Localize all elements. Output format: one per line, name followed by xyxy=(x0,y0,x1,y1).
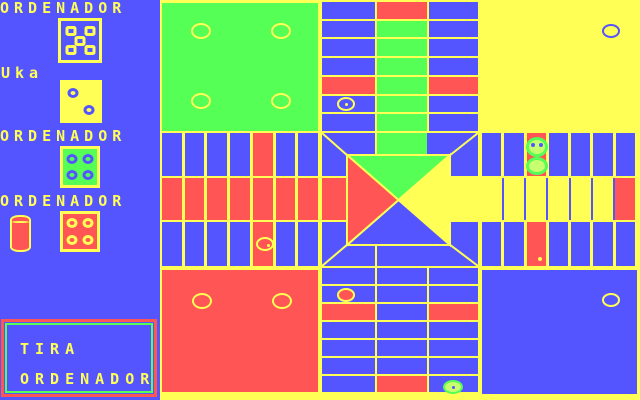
board-cell-green xyxy=(377,114,427,131)
message-box-inner: TIRA ORDENADOR xyxy=(5,323,153,393)
board-cell-yellow xyxy=(482,178,502,220)
board-cell-blue xyxy=(571,222,590,266)
board-cell-red xyxy=(322,77,375,94)
green-home-slot-circle xyxy=(271,23,291,39)
board-cell-blue xyxy=(429,286,478,302)
player-label-uka: Uka xyxy=(1,66,43,81)
piece-mark xyxy=(267,244,270,247)
board-cell-red xyxy=(253,178,273,220)
board-cell-blue xyxy=(377,304,427,320)
blue-home xyxy=(482,270,637,394)
board xyxy=(160,0,640,400)
board-cell-red xyxy=(230,178,250,220)
parchis-game-screen: ORDENADOR Uka ORDENADOR ORDENADOR TIRA O… xyxy=(0,0,640,400)
board-cell-red xyxy=(527,222,546,266)
die-pip xyxy=(65,26,76,36)
die-pip xyxy=(67,235,78,245)
die-pip xyxy=(67,170,78,180)
piece-green-track-bottom[interactable] xyxy=(443,380,463,394)
board-cell-red xyxy=(185,178,205,220)
board-cell-blue xyxy=(429,358,478,374)
die-pip xyxy=(82,218,93,228)
board-cell-blue xyxy=(162,222,182,266)
center-corner-patch xyxy=(426,133,478,176)
arm-left-bottom-row xyxy=(162,222,318,266)
green-home-slot-circle xyxy=(191,23,211,39)
message-box[interactable]: TIRA ORDENADOR xyxy=(1,319,157,397)
arm-right-bottom-row xyxy=(482,222,635,266)
die-pip xyxy=(82,154,93,164)
yellow-home-slot-circle xyxy=(602,24,620,38)
board-cell-blue xyxy=(322,268,375,284)
die-pip xyxy=(84,105,95,115)
die-pip xyxy=(67,88,78,98)
green-home-slot-circle xyxy=(191,93,211,109)
board-cell-blue xyxy=(429,114,478,131)
board-cell-blue xyxy=(482,222,501,266)
board-cell-red xyxy=(162,178,182,220)
board-cell-blue xyxy=(616,133,635,176)
board-cell-blue xyxy=(207,133,227,176)
board-cell-blue xyxy=(429,268,478,284)
die-Uka[interactable] xyxy=(60,80,102,123)
piece-mark xyxy=(345,103,348,106)
board-cell-red xyxy=(615,178,635,220)
board-cell-blue xyxy=(482,133,501,176)
board-cell-blue xyxy=(322,39,375,56)
arm-left-top-row xyxy=(162,133,318,176)
board-cell-blue xyxy=(504,222,523,266)
board-cell-blue xyxy=(230,133,250,176)
board-cell-red xyxy=(377,2,427,19)
die-ordenador-2[interactable] xyxy=(60,146,100,188)
board-cell-blue xyxy=(429,39,478,56)
board-cell-yellow xyxy=(593,178,613,220)
die-pip xyxy=(65,45,76,55)
arm-top-right-col xyxy=(429,2,478,131)
board-cell-blue xyxy=(322,358,375,374)
board-cell-blue xyxy=(276,222,296,266)
board-cell-blue xyxy=(549,133,568,176)
board-cell-blue xyxy=(429,322,478,338)
board-cell-red xyxy=(429,77,478,94)
entry-blue xyxy=(377,246,427,266)
piece-red-track[interactable] xyxy=(337,288,355,302)
board-cell-blue xyxy=(322,114,375,131)
board-cell-red xyxy=(253,133,273,176)
board-cell-blue xyxy=(429,58,478,75)
die-pip xyxy=(82,170,93,180)
piece-mark xyxy=(531,143,535,147)
center-corner-patch xyxy=(426,222,478,266)
board-cell-red xyxy=(322,304,375,320)
player-label-ordenador-3: ORDENADOR xyxy=(0,194,126,209)
center-corner-patch xyxy=(322,222,375,266)
board-cell-green xyxy=(377,96,427,113)
board-cell-blue xyxy=(322,376,375,392)
board-cell-blue xyxy=(593,222,612,266)
board-cell-blue xyxy=(276,133,296,176)
board-cell-blue xyxy=(377,322,427,338)
red-home xyxy=(162,270,318,392)
arm-top-mid-col xyxy=(377,2,427,131)
piece-green-pair-bottom[interactable] xyxy=(526,157,548,175)
board-cell-blue xyxy=(429,340,478,356)
player-label-ordenador-2: ORDENADOR xyxy=(0,129,126,144)
board-cell-blue xyxy=(429,96,478,113)
board-cell-red xyxy=(207,178,227,220)
board-cell-yellow xyxy=(548,178,568,220)
die-ordenador-1[interactable] xyxy=(58,18,102,63)
die-pip xyxy=(84,26,95,36)
board-cell-green xyxy=(377,77,427,94)
entry-yellow xyxy=(453,178,478,220)
arm-right-top-row xyxy=(482,133,635,176)
piece-mark xyxy=(539,143,543,147)
board-cell-blue xyxy=(322,2,375,19)
board-cell-blue xyxy=(429,2,478,19)
board-cell-blue xyxy=(377,286,427,302)
board-cell-yellow xyxy=(571,178,591,220)
board-cell-blue xyxy=(377,268,427,284)
board-cell-blue xyxy=(162,133,182,176)
board-cell-green xyxy=(377,39,427,56)
board-cell-blue xyxy=(322,58,375,75)
blue-home-slot-circle xyxy=(602,293,620,307)
board-cell-blue xyxy=(298,222,318,266)
red-home-slot-circle xyxy=(272,293,292,309)
arm-bottom-mid-col xyxy=(377,268,427,392)
board-cell-blue xyxy=(377,340,427,356)
board-cell-blue xyxy=(185,133,205,176)
board-cell-blue xyxy=(298,133,318,176)
board-cell-red xyxy=(276,178,296,220)
piece-yellow-track-top[interactable] xyxy=(337,97,355,111)
red-home-slot-circle xyxy=(192,293,212,309)
die-pip xyxy=(82,235,93,245)
green-home-slot-circle xyxy=(271,93,291,109)
die-pip xyxy=(84,45,95,55)
dice-cup[interactable] xyxy=(10,215,31,252)
board-cell-blue xyxy=(616,222,635,266)
board-cell-red xyxy=(429,304,478,320)
yellow-home xyxy=(482,3,637,131)
board-cell-blue xyxy=(549,222,568,266)
piece-yellow-track-left[interactable] xyxy=(256,237,274,251)
board-cell-blue xyxy=(322,21,375,38)
board-cell-yellow xyxy=(504,178,524,220)
board-cell-blue xyxy=(429,21,478,38)
die-pip xyxy=(67,154,78,164)
player-label-ordenador-1: ORDENADOR xyxy=(0,1,126,16)
die-ordenador-3[interactable] xyxy=(60,211,100,252)
board-cell-red xyxy=(377,376,427,392)
board-cell-blue xyxy=(377,358,427,374)
board-cell-blue xyxy=(571,133,590,176)
die-pip xyxy=(67,218,78,228)
dice-cup-rim xyxy=(12,221,29,223)
board-cell-blue xyxy=(322,340,375,356)
board-cell-yellow xyxy=(526,178,546,220)
piece-dot-right-arm[interactable] xyxy=(538,257,542,261)
board-cell-blue xyxy=(230,222,250,266)
board-cell-green xyxy=(377,58,427,75)
entry-red xyxy=(322,178,346,220)
board-cell-green xyxy=(377,21,427,38)
board-cell-blue xyxy=(322,322,375,338)
board-cell-red xyxy=(298,178,318,220)
arm-left-mid-row xyxy=(162,178,318,220)
message-line-1: TIRA xyxy=(20,340,151,358)
arm-top-left-col xyxy=(322,2,375,131)
green-home xyxy=(162,3,318,131)
board-cell-blue xyxy=(207,222,227,266)
board-cell-blue xyxy=(593,133,612,176)
piece-mark xyxy=(452,386,455,389)
board-cell-blue xyxy=(504,133,523,176)
arm-bottom-right-col xyxy=(429,268,478,392)
entry-green xyxy=(377,133,427,154)
piece-green-pair-top[interactable] xyxy=(526,137,548,157)
board-cell-blue xyxy=(185,222,205,266)
center-corner-patch xyxy=(322,133,375,176)
message-line-2: ORDENADOR xyxy=(20,370,151,388)
die-pip xyxy=(75,36,86,46)
arm-right-mid-row xyxy=(482,178,635,220)
arm-bottom-left-col xyxy=(322,268,375,392)
